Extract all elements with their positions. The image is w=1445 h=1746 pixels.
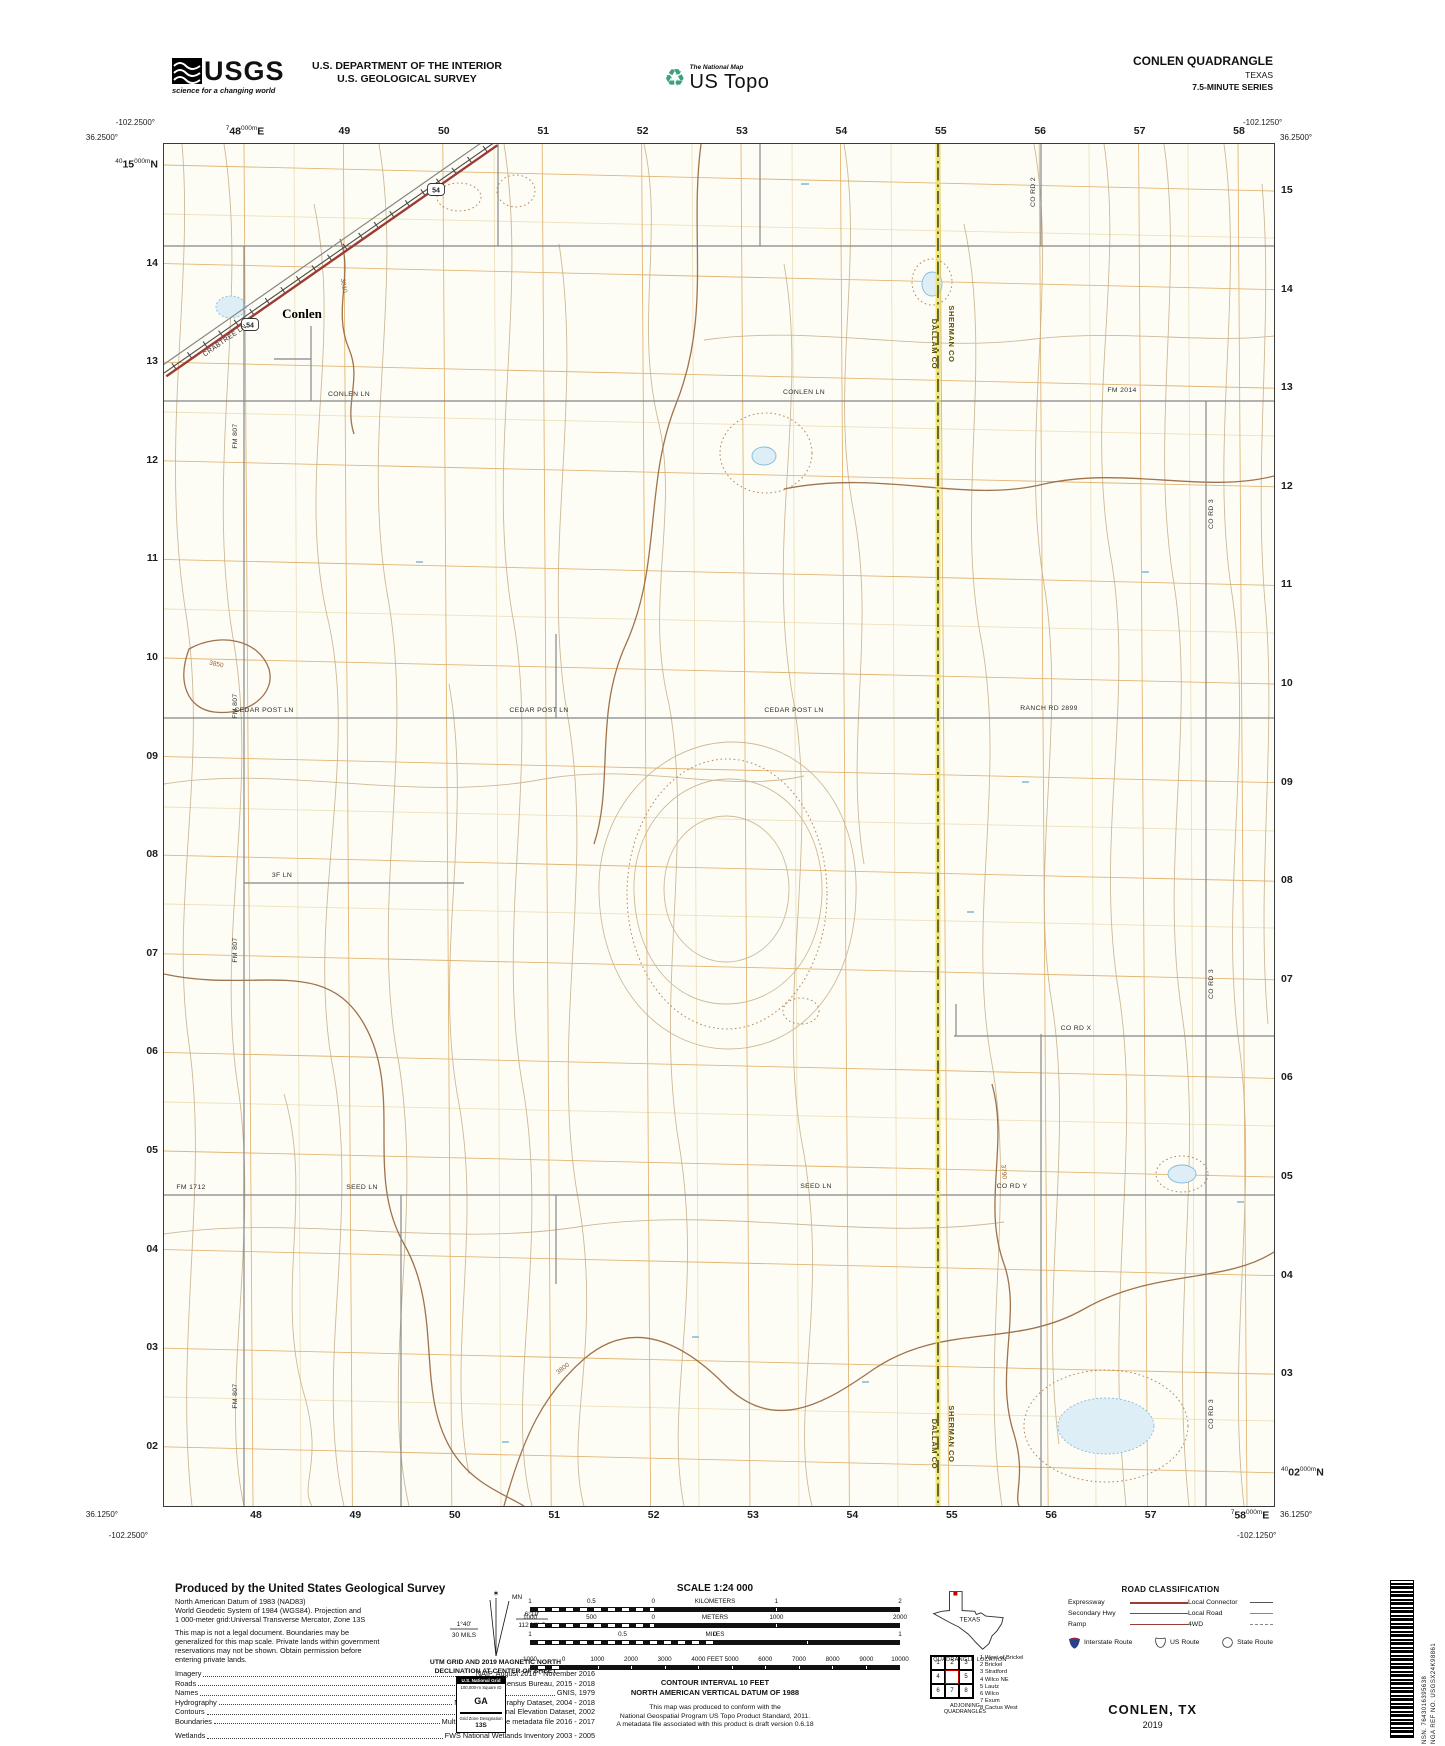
grid-label: 14: [92, 257, 158, 269]
grid-label: 54: [821, 125, 861, 137]
grid-label: 55: [921, 125, 961, 137]
topo-map-svg: 5454 CONLEN LNCONLEN LNFM 2014CEDAR POST…: [164, 144, 1274, 1506]
texas-outline: TEXAS: [930, 1590, 1010, 1650]
grid-label: 58: [1219, 125, 1259, 137]
town-label: Conlen: [282, 306, 323, 321]
adjoining-quadrangles: 12345678 1 West of Brickel2 Brickel3 Str…: [930, 1655, 1000, 1715]
adjoining-name: 5 Lautz: [980, 1684, 1070, 1691]
grid-label: 55: [930, 1509, 974, 1521]
grid-label: 758000mE: [1228, 1509, 1272, 1522]
scale-tick-label: 1000: [523, 1656, 537, 1663]
scale-title: SCALE 1:24 000: [530, 1583, 900, 1594]
scale-tick-label: 0: [651, 1614, 655, 1621]
adjoining-name: 1 West of Brickel: [980, 1655, 1070, 1662]
grid-label: 52: [632, 1509, 676, 1521]
quad-name: CONLEN QUADRANGLE: [1133, 54, 1273, 68]
adjoining-cell: 4: [931, 1670, 945, 1684]
scalebar-feet: 1000010002000300040005000600070008000900…: [530, 1656, 900, 1672]
scale-tick-label: 2000: [893, 1614, 907, 1621]
nga-ref-number: NGA REF NO. USGSX24K98861: [1431, 1643, 1437, 1744]
local-roads: [164, 144, 1274, 1506]
road-label: SEED LN: [346, 1184, 378, 1191]
barcode-icon: [1390, 1580, 1414, 1738]
usgs-topo-sheet: USGS science for a changing world U.S. D…: [0, 0, 1445, 1746]
road-class-label: Local Connector: [1188, 1599, 1250, 1606]
mn-label: MN: [512, 1594, 522, 1601]
utm-grid: [164, 144, 1274, 1506]
grid-label: 04: [92, 1243, 158, 1255]
contour-elevation-label: 3790: [999, 1164, 1007, 1179]
road-label: CO RD X: [1061, 1025, 1092, 1032]
usng-zone: 13S: [457, 1721, 505, 1732]
adjoining-name: 8 Cactus West: [980, 1705, 1070, 1712]
ustopo-logo: ♻ The National Map US Topo: [664, 64, 769, 94]
grid-label: 10: [92, 651, 158, 663]
scale-tick-label: 10000: [891, 1656, 909, 1663]
scale-tick-label: 1000: [523, 1614, 537, 1621]
contour-interval-note: CONTOUR INTERVAL 10 FEET: [530, 1678, 900, 1688]
corner-lat-tl: 36.2500°: [86, 133, 118, 142]
index-contour-lines: [164, 144, 1274, 1506]
road-label: CONLEN LN: [783, 389, 825, 396]
road-label: CO RD Y: [997, 1183, 1028, 1190]
grid-label: 12: [1281, 480, 1351, 492]
road-class-sample-line: [1130, 1613, 1188, 1614]
grid-label: 4015000mN: [92, 158, 158, 171]
grid-label: 49: [333, 1509, 377, 1521]
grid-label: 03: [1281, 1367, 1351, 1379]
road-classification-title: ROAD CLASSIFICATION: [1068, 1585, 1273, 1594]
scale-tick-label: 1: [775, 1598, 779, 1605]
map-imprint: CONLEN, TX 2019: [1108, 1702, 1197, 1730]
contour-elevation-label: 3810: [339, 278, 348, 294]
usng-title: U.S. National Grid: [457, 1677, 505, 1684]
grid-label: 05: [1281, 1170, 1351, 1182]
road-class-sample-line: [1250, 1613, 1273, 1614]
road-label: CEDAR POST LN: [509, 707, 568, 714]
barcode-block: NSN. 7643016395638 NGA REF NO. USGSX24K9…: [1388, 1576, 1438, 1744]
scale-tick-label: 1: [528, 1631, 532, 1638]
road-label: FM 807: [232, 693, 239, 718]
usng-box: U.S. National Grid 100,000-m Square ID G…: [456, 1676, 506, 1733]
road-class-sample-line: [1130, 1602, 1188, 1604]
grid-label: 13: [1281, 381, 1351, 393]
scalebar-meters: 1000500010002000METERS: [530, 1614, 900, 1630]
scale-block: SCALE 1:24 000 10.5012KILOMETERS 1000500…: [530, 1583, 900, 1730]
scale-tick-label: 1000: [590, 1656, 604, 1663]
road-label: CEDAR POST LN: [234, 707, 293, 714]
grid-label: 57: [1129, 1509, 1173, 1521]
corner-lat-bl: 36.1250°: [86, 1510, 118, 1519]
road-label: 3F LN: [272, 872, 292, 879]
grid-label: 13: [92, 355, 158, 367]
scale-tick-label: 1000: [769, 1614, 783, 1621]
adjoining-cell: 7: [945, 1684, 959, 1698]
scale-tick-label: 0.5: [618, 1631, 627, 1638]
grid-label: 53: [731, 1509, 775, 1521]
scale-tick-label: 0: [562, 1656, 566, 1663]
gn-degrees: 1°40': [457, 1620, 472, 1628]
grid-label: 4002000mN: [1281, 1466, 1351, 1479]
scale-tick-label: 6000: [758, 1656, 772, 1663]
road-class-sample-line: [1250, 1624, 1273, 1625]
grid-label: 12: [92, 454, 158, 466]
nsn-number: NSN. 7643016395638: [1422, 1676, 1428, 1744]
grid-label: 11: [1281, 578, 1351, 590]
scale-tick-label: 2000: [624, 1656, 638, 1663]
road-class-label: 4WD: [1188, 1621, 1250, 1628]
grid-label: 05: [92, 1144, 158, 1156]
scale-tick-label: 5000: [725, 1656, 739, 1663]
ustopo-icon: ♻: [664, 67, 686, 91]
national-map-label: The National Map: [690, 64, 770, 71]
imprint-year: 2019: [1108, 1720, 1197, 1730]
county-label: DALLAM CO: [930, 319, 939, 369]
vertical-datum-note: NORTH AMERICAN VERTICAL DATUM OF 1988: [530, 1688, 900, 1698]
road-label: FM 1712: [176, 1184, 205, 1191]
grid-label: 57: [1120, 125, 1160, 137]
road-class-sample-line: [1250, 1602, 1273, 1603]
road-class-sample-line: [1130, 1624, 1188, 1625]
adjoining-name: 3 Stratford: [980, 1669, 1070, 1676]
county-label: SHERMAN CO: [947, 305, 956, 362]
scale-tick-label: 0: [713, 1631, 717, 1638]
road-label: CRABTREE LN: [202, 323, 248, 358]
adjoining-name: 4 Wilco NE: [980, 1677, 1070, 1684]
road-class-label: Local Road: [1188, 1610, 1250, 1617]
adjoining-cell: [945, 1670, 959, 1684]
grid-label: 07: [92, 947, 158, 959]
county-label: DALLAM CO: [930, 1419, 939, 1469]
scalebar-miles: 10.501 MILES: [530, 1631, 900, 1647]
scale-tick-label: 7000: [792, 1656, 806, 1663]
scale-tick-label: 500: [586, 1614, 597, 1621]
grid-label: 50: [424, 125, 464, 137]
scale-tick-label: 1: [528, 1598, 532, 1605]
grid-label: 14: [1281, 283, 1351, 295]
grid-label: 748000mE: [225, 125, 265, 138]
scale-tick-label: 2: [898, 1598, 902, 1605]
us-route-shield: US Route: [1154, 1636, 1199, 1649]
scalebar-kilometers: 10.5012KILOMETERS: [530, 1598, 900, 1614]
grid-label: 04: [1281, 1269, 1351, 1281]
grid-label: 06: [1281, 1071, 1351, 1083]
metadata-row: WetlandsFWS National Wetlands Inventory …: [175, 1731, 595, 1741]
scale-tick-label: 0.5: [587, 1598, 596, 1605]
road-label: RANCH RD 2899: [1020, 705, 1077, 712]
grid-label: 56: [1020, 125, 1060, 137]
adjoining-cell: 3: [959, 1656, 973, 1670]
interstate-shield: Interstate Route: [1068, 1636, 1132, 1649]
grid-label: 07: [1281, 973, 1351, 985]
grid-label: 09: [1281, 776, 1351, 788]
road-label: CO RD 2: [1030, 177, 1037, 207]
corner-lat-br: 36.1250°: [1280, 1510, 1312, 1519]
adjoining-name: 2 Brickel: [980, 1662, 1070, 1669]
road-label: CO RD 3: [1208, 499, 1215, 529]
grid-label: 10: [1281, 677, 1351, 689]
grid-label: 50: [433, 1509, 477, 1521]
imprint-title: CONLEN, TX: [1108, 1702, 1197, 1717]
ustopo-label: US Topo: [690, 71, 770, 94]
contour-elevation-label: 3850: [209, 660, 225, 670]
corner-lon-tl: -102.2500°: [116, 118, 155, 127]
contour-lines: [164, 144, 1274, 1506]
adjoining-name: 7 Exum: [980, 1698, 1070, 1705]
scale-unit-label: METERS: [702, 1614, 728, 1621]
adjoining-cell: 5: [959, 1670, 973, 1684]
road-class-label: Expressway: [1068, 1599, 1130, 1606]
grid-label: 51: [532, 1509, 576, 1521]
svg-text:✶: ✶: [493, 1589, 500, 1598]
dept-line1: U.S. DEPARTMENT OF THE INTERIOR: [262, 60, 552, 73]
scale-tick-label: 4000: [691, 1656, 705, 1663]
quadrangle-location-marker: [953, 1592, 957, 1596]
scale-tick-label: 3000: [658, 1656, 672, 1663]
adjoining-cell: 1: [931, 1656, 945, 1670]
route-shields: 5454: [242, 184, 445, 331]
road-label: FM 807: [232, 423, 239, 448]
map-area: 5454 CONLEN LNCONLEN LNFM 2014CEDAR POST…: [163, 143, 1275, 1507]
grid-label: 52: [623, 125, 663, 137]
scale-tick-label: 0: [651, 1598, 655, 1605]
grid-label: 03: [92, 1341, 158, 1353]
scale-tick-label: 9000: [859, 1656, 873, 1663]
grid-label: 08: [92, 848, 158, 860]
dept-line2: U.S. GEOLOGICAL SURVEY: [262, 73, 552, 86]
railroad: [164, 144, 495, 373]
usng-square-id: GA: [457, 1690, 505, 1712]
grid-label: 54: [830, 1509, 874, 1521]
grid-label: 51: [523, 125, 563, 137]
quad-series: 7.5-MINUTE SERIES: [1133, 82, 1273, 92]
usgs-tagline: science for a changing world: [172, 86, 275, 95]
usgs-wave-icon: [172, 58, 202, 84]
corner-lon-bl: -102.2500°: [109, 1531, 148, 1540]
road-label: CEDAR POST LN: [764, 707, 823, 714]
highway-us54: [166, 145, 497, 376]
state-route-circle: State Route: [1221, 1636, 1273, 1649]
road-classification-legend: ROAD CLASSIFICATION ExpresswayLocal Conn…: [1068, 1585, 1273, 1649]
road-label: FM 807: [232, 937, 239, 962]
usng-subtitle: 100,000-m Square ID: [457, 1684, 505, 1690]
grid-label: 56: [1029, 1509, 1073, 1521]
grid-label: 02: [92, 1440, 158, 1452]
quad-state: TEXAS: [1133, 70, 1273, 80]
grid-label: 53: [722, 125, 762, 137]
grid-label: 15: [1281, 184, 1351, 196]
state-locator: TEXAS QUADRANGLE LOCATION: [930, 1590, 1010, 1663]
adjoining-cell: 6: [931, 1684, 945, 1698]
scale-tick-label: 8000: [826, 1656, 840, 1663]
corner-lon-br: -102.1250°: [1237, 1531, 1276, 1540]
road-label: CO RD 3: [1208, 969, 1215, 999]
scale-tick-label: 1: [898, 1631, 902, 1638]
grid-label: 48: [234, 1509, 278, 1521]
road-label: FM 2014: [1107, 387, 1136, 394]
road-label: SEED LN: [800, 1183, 832, 1190]
road-class-label: Secondary Hwy: [1068, 1610, 1130, 1617]
grid-label: 08: [1281, 874, 1351, 886]
grid-label: 09: [92, 750, 158, 762]
section-lines: [164, 144, 1274, 1506]
svg-text:54: 54: [432, 187, 440, 194]
grid-label: 49: [324, 125, 364, 137]
corner-lat-tr: 36.2500°: [1280, 133, 1312, 142]
adjoining-cell: 2: [945, 1656, 959, 1670]
grid-label: 06: [92, 1045, 158, 1057]
department-heading: U.S. DEPARTMENT OF THE INTERIOR U.S. GEO…: [262, 60, 552, 86]
road-label: CO RD 3: [1208, 1399, 1215, 1429]
usng-zone-label: Grid Zone Designation: [457, 1714, 505, 1721]
road-label: FM 807: [232, 1383, 239, 1408]
county-label: SHERMAN CO: [947, 1405, 956, 1462]
gn-mils: 30 MILS: [452, 1632, 477, 1639]
product-standard-note: This map was produced to conform with th…: [530, 1704, 900, 1730]
road-label: CONLEN LN: [328, 391, 370, 398]
us-route-shield: 54: [428, 184, 445, 196]
scale-unit-label: KILOMETERS: [695, 1598, 736, 1605]
road-class-label: Ramp: [1068, 1621, 1130, 1628]
svg-text:TEXAS: TEXAS: [960, 1617, 981, 1624]
adjoining-cell: 8: [959, 1684, 973, 1698]
adjoining-name: 6 Wilco: [980, 1691, 1070, 1698]
quadrangle-title: CONLEN QUADRANGLE TEXAS 7.5-MINUTE SERIE…: [1133, 54, 1273, 92]
grid-label: 11: [92, 552, 158, 564]
